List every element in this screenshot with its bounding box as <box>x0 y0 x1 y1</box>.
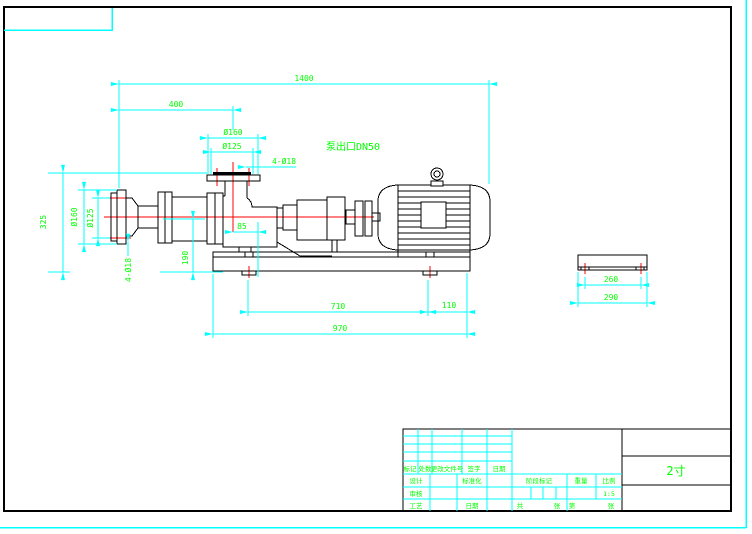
rev-header-sign: 签字 <box>468 464 482 473</box>
casing-flange-d <box>215 193 223 244</box>
coupling-disc-b <box>365 201 372 236</box>
dim-outlet-offset-label: 85 <box>237 222 247 231</box>
sheet-borders <box>0 0 746 528</box>
role-check: 审核 <box>410 489 424 498</box>
dim-inlet-od-label: Ø160 <box>69 207 79 226</box>
dim-outlet-od-label: Ø160 <box>223 127 242 137</box>
eyebolt-ring <box>431 168 443 180</box>
dim-outlet-holes-label: 4-Ø18 <box>272 156 296 166</box>
role-standardization: 标准化 <box>462 476 482 485</box>
dim-inlet-holes-label: 4-Ø18 <box>123 258 133 282</box>
bearing-housing <box>297 200 327 240</box>
outlet-note: 泵出口DN50 <box>326 140 380 153</box>
weight-label: 重量 <box>575 477 589 485</box>
eyebolt-ring-inner <box>434 171 440 177</box>
role-process: 工艺 <box>410 502 424 510</box>
stage-label: 阶段标记 <box>526 476 553 485</box>
gland <box>277 208 283 228</box>
baseplate-end-view <box>578 255 647 270</box>
dim-inlet-bc-label: Ø125 <box>85 208 95 227</box>
corner-label-box <box>4 8 112 30</box>
part-name: 2寸 <box>666 464 685 478</box>
pump-casing <box>223 196 277 247</box>
dim-base-bolt-span-label: 260 <box>604 275 619 284</box>
motor <box>378 168 490 257</box>
terminal-box <box>421 202 446 228</box>
dim-foot-to-end-label: 110 <box>442 301 457 310</box>
outlet-raised-face <box>213 172 251 175</box>
sheets-total-suffix: 张 <box>554 501 561 510</box>
dim-overall-length-label: 1400 <box>294 74 313 83</box>
role-date: 日期 <box>466 502 480 510</box>
dim-base-width-label: 290 <box>604 293 619 302</box>
scale-label: 比例 <box>603 476 616 485</box>
eyebolt-base <box>431 181 443 186</box>
rev-header-mark: 标记 <box>404 464 418 473</box>
baseplate <box>213 252 470 275</box>
dim-base-length-label: 970 <box>333 324 348 333</box>
drawing-canvas: 1400 400 Ø160 Ø125 4-Ø18 泵出口DN50 325 Ø16… <box>0 0 752 534</box>
casing-flange-c <box>207 193 215 244</box>
title-block: 标记 处数 更改文件号 签字 日期 设计 审核 工艺 标准化 日期 阶段标记 重… <box>403 429 731 511</box>
sheet-no-prefix: 第 <box>569 501 576 510</box>
pump-geometry <box>111 168 647 275</box>
cad-sheet: 1400 400 Ø160 Ø125 4-Ø18 泵出口DN50 325 Ø16… <box>0 0 752 534</box>
rev-header-docno: 更改文件号 <box>431 464 464 473</box>
role-design: 设计 <box>410 476 424 485</box>
dim-inlet-to-outlet-label: 400 <box>169 100 184 109</box>
rev-header-date: 日期 <box>493 465 507 473</box>
pump-foot <box>239 247 251 252</box>
scale-value: 1:5 <box>603 490 615 498</box>
bearing-bracket <box>327 197 345 240</box>
sheet-no-suffix: 张 <box>608 501 615 510</box>
dim-outlet-bc-label: Ø125 <box>222 141 241 151</box>
dim-outlet-height-label: 325 <box>39 215 48 230</box>
coupling-disc-a <box>355 201 363 236</box>
dim-foot-span-label: 710 <box>331 302 346 311</box>
dim-centerline-height-label: 190 <box>181 251 190 266</box>
sheets-total-prefix: 共 <box>517 501 524 510</box>
